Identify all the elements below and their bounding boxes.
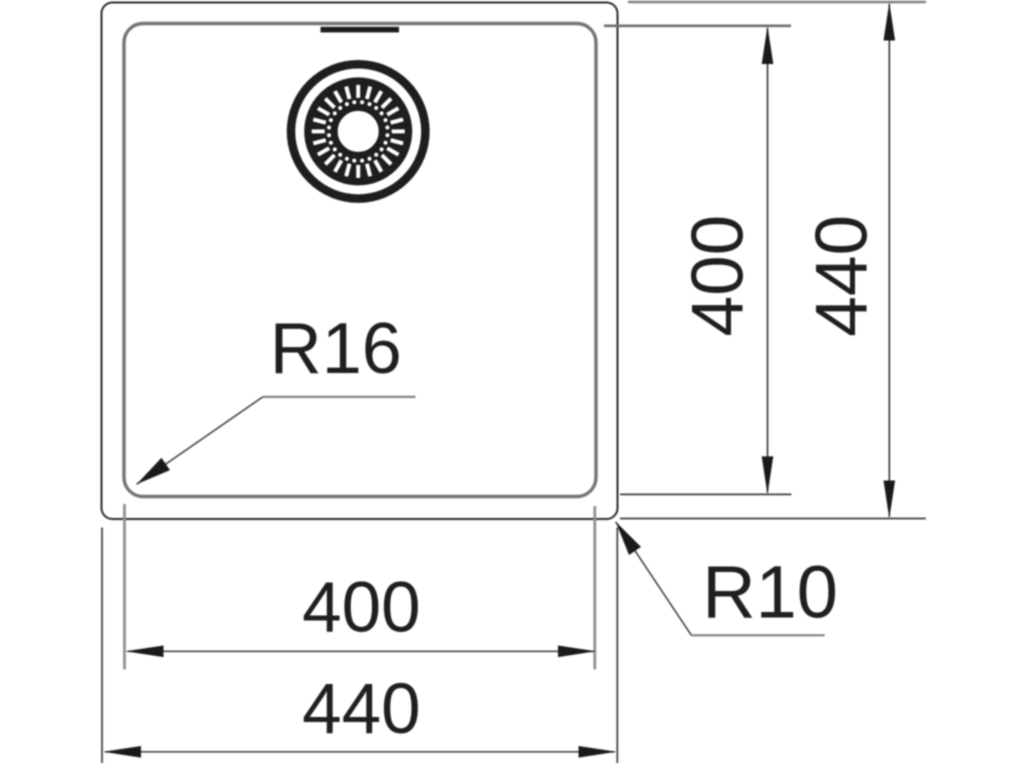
svg-text:440: 440 xyxy=(302,670,420,749)
svg-text:R16: R16 xyxy=(270,309,402,389)
svg-text:400: 400 xyxy=(678,215,759,337)
svg-text:R10: R10 xyxy=(702,551,838,634)
svg-text:440: 440 xyxy=(801,215,882,337)
svg-text:400: 400 xyxy=(302,568,420,647)
